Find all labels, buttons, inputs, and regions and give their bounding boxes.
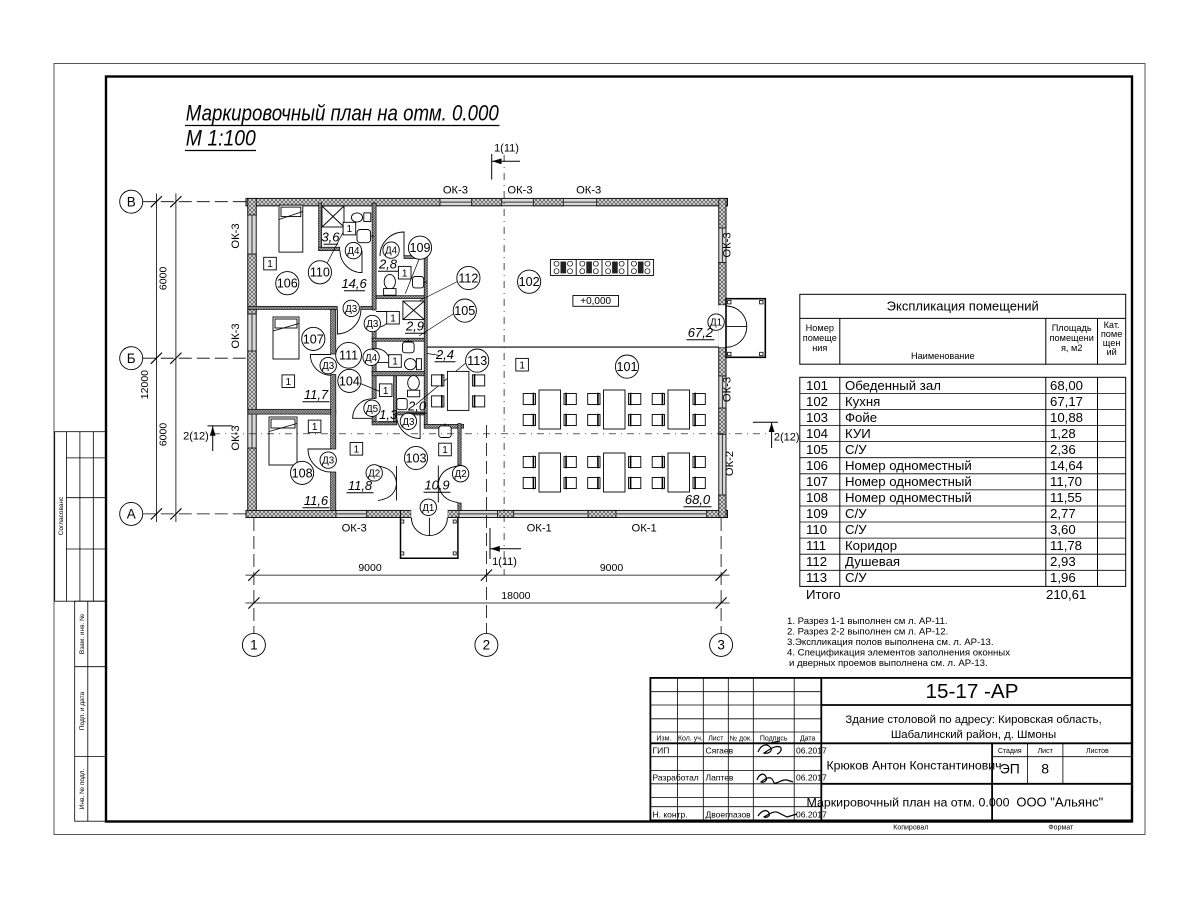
svg-text:Инв. № подл.: Инв. № подл. — [79, 769, 86, 810]
svg-text:102: 102 — [806, 394, 828, 409]
svg-text:ООО "Альянс": ООО "Альянс" — [1016, 795, 1103, 810]
svg-text:2,8: 2,8 — [378, 257, 398, 272]
svg-text:Маркировочный план на отм. 0.: Маркировочный план на отм. 0.000 — [186, 101, 500, 126]
svg-text:1: 1 — [267, 259, 273, 270]
svg-text:Н. контр.: Н. контр. — [653, 810, 688, 820]
svg-text:14,6: 14,6 — [341, 276, 367, 291]
svg-text:1,28: 1,28 — [1050, 426, 1076, 441]
svg-text:2. Разрез 2-2 выполнен см л. А: 2. Разрез 2-2 выполнен см л. АР-12. — [787, 627, 948, 638]
svg-text:Д4: Д4 — [385, 246, 398, 257]
svg-text:КУИ: КУИ — [845, 426, 871, 441]
svg-text:ОК-3: ОК-3 — [507, 185, 532, 197]
svg-text:6000: 6000 — [158, 267, 170, 291]
svg-text:С/У: С/У — [845, 522, 867, 537]
svg-text:Сягаев: Сягаев — [706, 746, 734, 756]
svg-text:ГИП: ГИП — [653, 746, 670, 756]
svg-text:ОК-3: ОК-3 — [722, 232, 734, 257]
svg-text:9000: 9000 — [358, 562, 382, 574]
svg-text:1: 1 — [519, 360, 525, 371]
svg-text:8: 8 — [1041, 761, 1049, 777]
svg-text:109: 109 — [806, 506, 828, 521]
svg-text:Листов: Листов — [1086, 748, 1109, 755]
svg-text:С/У: С/У — [845, 442, 867, 457]
svg-text:Дата: Дата — [800, 736, 816, 743]
svg-text:Лист: Лист — [1038, 748, 1054, 755]
svg-text:1,96: 1,96 — [1050, 570, 1076, 585]
svg-text:Крюков Антон Константинович: Крюков Антон Константинович — [826, 759, 1001, 773]
svg-text:3.Экспликация полов выполнена: 3.Экспликация полов выполнена см. л. АР-… — [787, 637, 994, 648]
svg-text:101: 101 — [806, 378, 828, 393]
svg-text:ОК-3: ОК-3 — [443, 185, 468, 197]
svg-text:67,17: 67,17 — [1050, 394, 1083, 409]
svg-text:Лаптев: Лаптев — [706, 773, 734, 783]
svg-text:ЭП: ЭП — [1000, 761, 1020, 777]
svg-text:Коридор: Коридор — [845, 538, 897, 553]
svg-text:2(12): 2(12) — [183, 431, 209, 443]
svg-text:68,00: 68,00 — [1050, 378, 1083, 393]
svg-text:112: 112 — [806, 554, 827, 569]
svg-text:ния: ния — [812, 343, 827, 353]
svg-text:1,3: 1,3 — [379, 407, 398, 422]
svg-text:Взам. инв. №: Взам. инв. № — [79, 614, 86, 654]
svg-text:ий: ий — [1106, 347, 1116, 357]
svg-text:109: 109 — [409, 241, 430, 255]
svg-text:103: 103 — [405, 451, 426, 465]
svg-text:12000: 12000 — [139, 370, 151, 399]
svg-text:104: 104 — [339, 374, 360, 388]
svg-text:Д4: Д4 — [365, 353, 378, 364]
svg-text:107: 107 — [806, 474, 828, 489]
svg-text:102: 102 — [519, 275, 540, 289]
svg-text:11,78: 11,78 — [1050, 538, 1082, 553]
svg-text:ОК-2: ОК-2 — [724, 451, 736, 476]
svg-text:Д3: Д3 — [402, 417, 415, 428]
svg-text:Душевая: Душевая — [845, 554, 900, 569]
svg-text:06.2017: 06.2017 — [796, 746, 827, 756]
svg-text:11,8: 11,8 — [348, 478, 373, 493]
svg-text:ОК-3: ОК-3 — [230, 425, 242, 450]
svg-text:Здание столовой по адресу: Кир: Здание столовой по адресу: Кировская обл… — [845, 714, 1101, 726]
svg-text:Согласованс: Согласованс — [58, 496, 65, 535]
svg-text:11,7: 11,7 — [304, 387, 329, 402]
svg-text:Маркировочный план на отм. 0.: Маркировочный план на отм. 0.000 — [807, 796, 1010, 810]
svg-text:ОК-3: ОК-3 — [342, 523, 367, 535]
svg-text:2: 2 — [483, 638, 491, 653]
svg-text:Формат: Формат — [1048, 825, 1074, 832]
svg-text:113: 113 — [467, 354, 487, 368]
svg-text:11,55: 11,55 — [1050, 490, 1082, 505]
svg-text:Кол. уч.: Кол. уч. — [678, 736, 703, 743]
svg-text:10,88: 10,88 — [1050, 410, 1083, 425]
svg-text:1: 1 — [390, 313, 396, 324]
svg-text:Двоеглазов: Двоеглазов — [706, 810, 752, 820]
svg-text:1: 1 — [402, 268, 408, 279]
svg-text:А: А — [127, 507, 136, 522]
svg-text:113: 113 — [806, 570, 827, 585]
svg-text:9000: 9000 — [600, 562, 624, 574]
svg-text:105: 105 — [806, 442, 828, 457]
svg-text:11,70: 11,70 — [1050, 474, 1082, 489]
svg-text:3: 3 — [717, 638, 725, 653]
svg-text:111: 111 — [806, 538, 826, 553]
svg-text:11,6: 11,6 — [304, 493, 329, 508]
svg-text:Д1: Д1 — [422, 503, 434, 514]
svg-text:106: 106 — [277, 277, 298, 291]
svg-text:Д3: Д3 — [322, 361, 335, 372]
svg-text:Д3: Д3 — [322, 456, 335, 467]
svg-text:2,4: 2,4 — [435, 347, 454, 362]
svg-text:Д3: Д3 — [345, 304, 358, 315]
svg-text:105: 105 — [454, 304, 475, 318]
svg-text:Номер: Номер — [806, 323, 834, 333]
svg-text:106: 106 — [806, 458, 828, 473]
svg-text:я, м2: я, м2 — [1061, 343, 1083, 353]
svg-text:107: 107 — [303, 332, 324, 346]
svg-text:ОК-1: ОК-1 — [632, 523, 657, 535]
svg-text:1: 1 — [442, 445, 448, 456]
svg-text:Номер одноместный: Номер одноместный — [845, 490, 972, 505]
svg-text:Д4: Д4 — [347, 246, 360, 257]
svg-text:2,77: 2,77 — [1050, 506, 1076, 521]
svg-text:1: 1 — [383, 386, 389, 397]
svg-text:Кухня: Кухня — [845, 394, 880, 409]
svg-text:1: 1 — [312, 422, 318, 433]
svg-text:2,36: 2,36 — [1050, 442, 1076, 457]
svg-text:1. Разрез 1-1 выполнен см л. А: 1. Разрез 1-1 выполнен см л. АР-11. — [787, 616, 948, 627]
svg-text:Шабалинский район, д. Шмоны: Шабалинский район, д. Шмоны — [891, 729, 1056, 741]
svg-text:10,9: 10,9 — [424, 478, 449, 493]
svg-text:Номер одноместный: Номер одноместный — [845, 458, 972, 473]
svg-text:1(11): 1(11) — [492, 556, 517, 568]
svg-text:Д3: Д3 — [366, 319, 379, 330]
svg-text:С/У: С/У — [845, 506, 867, 521]
svg-text:1(11): 1(11) — [494, 143, 519, 155]
svg-text:ОК-3: ОК-3 — [722, 377, 734, 402]
svg-text:В: В — [127, 195, 136, 210]
svg-text:06.2017: 06.2017 — [796, 810, 827, 820]
svg-text:Копировал: Копировал — [893, 825, 928, 832]
svg-text:Лист: Лист — [708, 736, 724, 743]
svg-text:+0,000: +0,000 — [580, 296, 611, 307]
svg-text:101: 101 — [616, 360, 637, 374]
svg-text:1: 1 — [286, 377, 292, 388]
svg-text:6000: 6000 — [158, 423, 170, 447]
svg-text:18000: 18000 — [501, 590, 530, 602]
svg-text:2,93: 2,93 — [1050, 554, 1076, 569]
svg-text:210,61: 210,61 — [1046, 587, 1086, 602]
svg-text:ОК-1: ОК-1 — [527, 523, 552, 535]
svg-text:Стадия: Стадия — [998, 748, 1022, 755]
svg-text:110: 110 — [806, 522, 827, 537]
svg-text:Площадь: Площадь — [1052, 323, 1092, 333]
svg-text:ОК-3: ОК-3 — [576, 185, 601, 197]
svg-text:Д5: Д5 — [366, 404, 379, 415]
svg-text:2,9: 2,9 — [405, 319, 424, 334]
svg-text:1: 1 — [347, 224, 353, 235]
svg-text:Номер одноместный: Номер одноместный — [845, 474, 972, 489]
svg-text:104: 104 — [806, 426, 828, 441]
svg-text:Изм.: Изм. — [656, 736, 671, 743]
svg-text:68,0: 68,0 — [685, 492, 711, 507]
svg-text:М 1:100: М 1:100 — [186, 126, 257, 151]
svg-text:108: 108 — [292, 466, 313, 480]
svg-text:Наименование: Наименование — [911, 351, 975, 361]
svg-text:Итого: Итого — [806, 587, 841, 602]
svg-text:помещени: помещени — [1050, 333, 1094, 343]
svg-text:110: 110 — [310, 266, 330, 280]
svg-text:1: 1 — [392, 357, 398, 368]
svg-text:Фойе: Фойе — [845, 410, 877, 425]
svg-text:15-17 -АР: 15-17 -АР — [926, 680, 1019, 703]
svg-text:2,0: 2,0 — [407, 399, 427, 414]
svg-text:108: 108 — [806, 490, 828, 505]
svg-text:Обеденный зал: Обеденный зал — [845, 378, 941, 393]
svg-text:3,6: 3,6 — [321, 230, 340, 245]
svg-text:103: 103 — [806, 410, 828, 425]
svg-text:Б: Б — [127, 351, 136, 366]
svg-text:67,2: 67,2 — [688, 325, 714, 340]
svg-text:Разработал: Разработал — [653, 773, 699, 783]
svg-text:2(12): 2(12) — [774, 431, 800, 443]
svg-text:Подпись: Подпись — [760, 736, 788, 743]
svg-text:4. Спецификация элементов запо: 4. Спецификация элементов заполнения око… — [787, 648, 1010, 659]
svg-text:ОК-3: ОК-3 — [230, 323, 242, 348]
svg-text:Д2: Д2 — [455, 469, 467, 480]
svg-text:Подп. и дата: Подп. и дата — [79, 691, 86, 730]
svg-text:1: 1 — [354, 444, 360, 455]
svg-text:111: 111 — [339, 349, 358, 363]
svg-text:ОК-3: ОК-3 — [230, 223, 242, 248]
svg-text:Экспликация помещений: Экспликация помещений — [887, 299, 1039, 314]
svg-text:112: 112 — [458, 271, 478, 285]
svg-text:1: 1 — [250, 638, 258, 653]
svg-text:С/У: С/У — [845, 570, 867, 585]
svg-text:3,60: 3,60 — [1050, 522, 1076, 537]
svg-text:06.2017: 06.2017 — [796, 773, 827, 783]
svg-text:и дверных проемов выполнена с: и дверных проемов выполнена см. л. АР-13… — [789, 658, 988, 669]
svg-text:помеще: помеще — [803, 333, 837, 343]
svg-text:№ док.: № док. — [730, 736, 752, 743]
svg-text:14,64: 14,64 — [1050, 458, 1083, 473]
